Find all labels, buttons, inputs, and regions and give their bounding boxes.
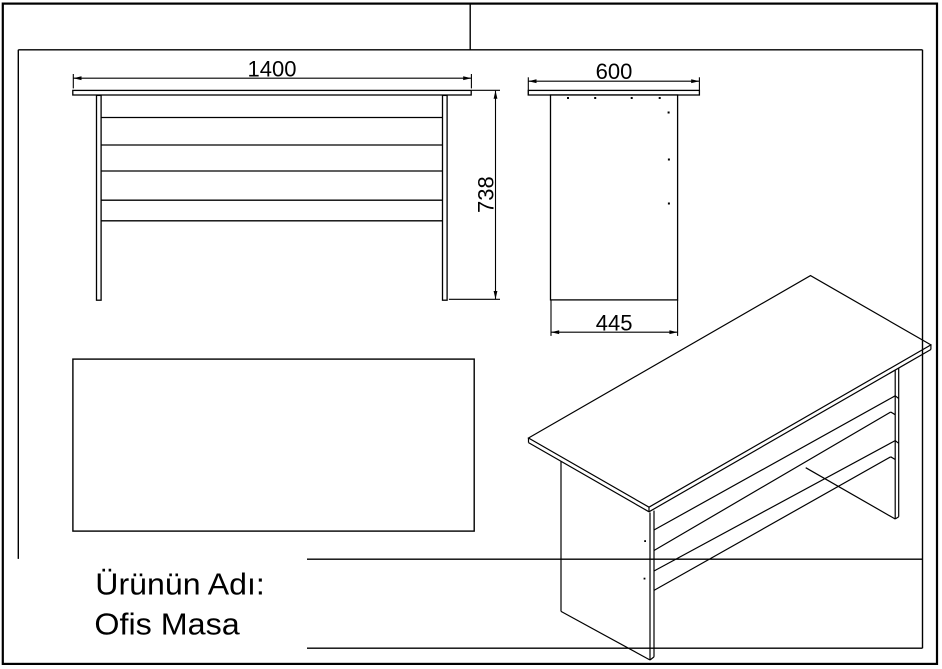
svg-text:Ofis Masa: Ofis Masa	[94, 607, 240, 642]
svg-text:738: 738	[473, 176, 498, 213]
svg-text:445: 445	[596, 311, 633, 336]
svg-text:Ürünün Adı:: Ürünün Adı:	[95, 567, 264, 602]
svg-text:600: 600	[596, 59, 633, 84]
